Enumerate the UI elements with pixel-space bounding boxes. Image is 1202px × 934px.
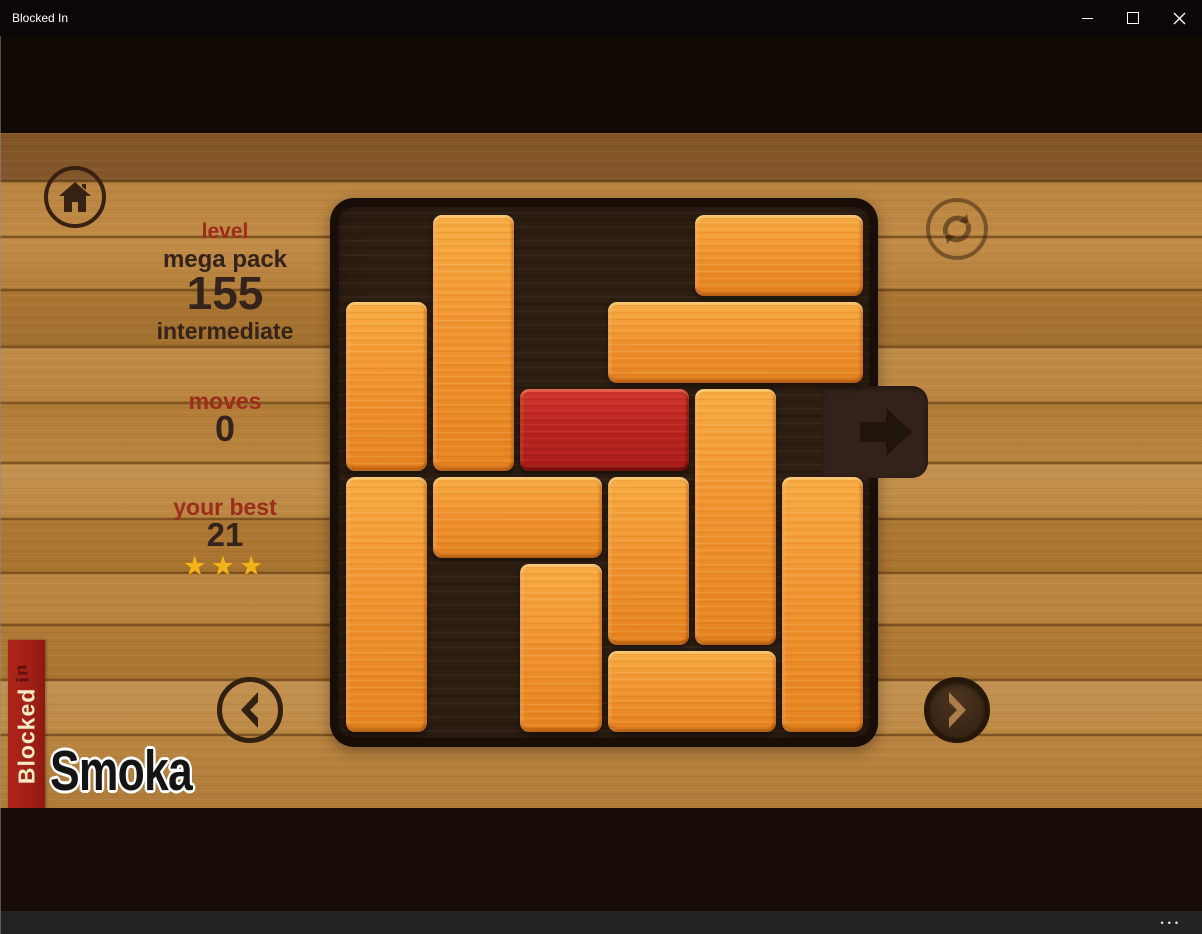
- more-dots-icon: •••: [1161, 918, 1182, 928]
- app-bar: •••: [0, 911, 1202, 934]
- window-title: Blocked In: [12, 0, 68, 36]
- chevron-left-icon: [222, 682, 278, 738]
- titlebar: Blocked In: [0, 0, 1202, 36]
- minimize-icon: [1082, 18, 1093, 19]
- level-number: 155: [110, 270, 340, 316]
- chevron-right-icon: [929, 682, 985, 738]
- wood-block[interactable]: [608, 651, 776, 732]
- wood-block[interactable]: [433, 215, 514, 471]
- watermark-text: Smoka: [50, 738, 192, 804]
- level-label: level: [110, 220, 340, 244]
- best-value: 21: [110, 518, 340, 551]
- exit-arrow-icon: [858, 400, 914, 464]
- star-icon: ★: [211, 551, 239, 581]
- wood-block[interactable]: [520, 564, 601, 732]
- home-button[interactable]: [44, 166, 106, 228]
- red-block[interactable]: [520, 389, 688, 470]
- difficulty-label: intermediate: [110, 318, 340, 345]
- puzzle-board: [330, 198, 878, 747]
- bottom-letterbox: [0, 808, 1202, 911]
- top-letterbox: [0, 36, 1202, 133]
- close-button[interactable]: [1156, 0, 1202, 36]
- wood-block[interactable]: [346, 477, 427, 733]
- stars-row: ★★★: [110, 551, 340, 582]
- restart-button[interactable]: [926, 198, 988, 260]
- wood-block[interactable]: [695, 389, 776, 645]
- minimize-button[interactable]: [1064, 0, 1110, 36]
- window-edge: [0, 36, 1, 934]
- wood-block[interactable]: [608, 477, 689, 645]
- wood-block[interactable]: [346, 302, 427, 470]
- maximize-button[interactable]: [1110, 0, 1156, 36]
- star-icon: ★: [183, 551, 211, 581]
- wood-block[interactable]: [695, 215, 863, 296]
- wood-block[interactable]: [433, 477, 601, 558]
- restart-icon: [938, 210, 976, 248]
- exit-slot: [822, 386, 928, 478]
- close-icon: [1173, 12, 1186, 25]
- prev-level-button[interactable]: [217, 677, 283, 743]
- more-options-button[interactable]: •••: [1155, 911, 1188, 934]
- banner-suffix: in: [10, 662, 33, 684]
- wood-block[interactable]: [608, 302, 864, 383]
- app-window: Blocked In leve: [0, 0, 1202, 934]
- wood-block[interactable]: [782, 477, 863, 733]
- ribbon-banner: Blocked in: [8, 640, 45, 808]
- home-icon: [58, 181, 92, 213]
- next-level-button[interactable]: [924, 677, 990, 743]
- star-icon: ★: [239, 551, 267, 581]
- ribbon-text: Blocked in: [8, 640, 45, 808]
- banner-word: Blocked: [13, 688, 40, 784]
- moves-value: 0: [110, 411, 340, 447]
- maximize-icon: [1127, 12, 1139, 24]
